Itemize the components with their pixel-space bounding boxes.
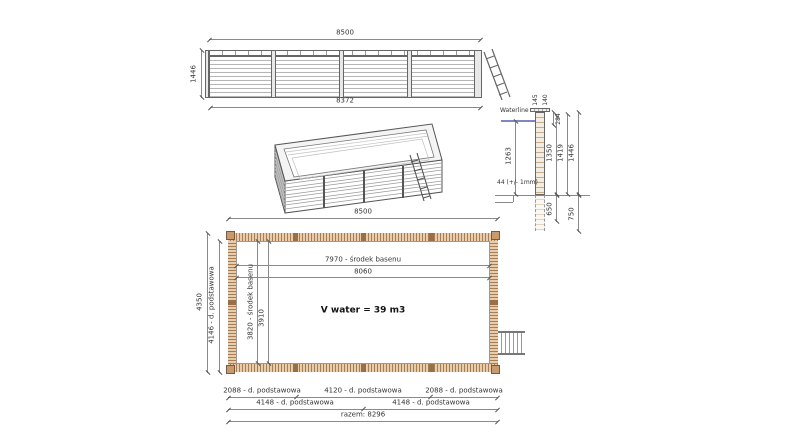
elevation-top-dim-label: 8500 [336,30,354,37]
section-ground-line [495,195,590,196]
elevation-wall-planks [209,56,481,98]
section-dim-label-1419: 1419 [558,144,565,162]
plan-corner-post [226,231,235,240]
plan-ladder-drawing [498,331,525,355]
plan-post-mark [490,300,498,305]
plan-post-mark [228,300,236,305]
plan-top-dim-line [228,218,498,219]
plan-total-label: razem: 8296 [341,412,385,419]
elevation-height-dim-label: 1446 [191,65,198,83]
plan-center-width-line [257,241,258,364]
plan-center-length-line [236,265,490,266]
elevation-post [407,50,412,98]
plan-post-mark [361,233,366,241]
section-dim-label-750: 750 [569,207,576,220]
plan-post-mark [429,233,434,241]
section-top-dim-a: 145 [533,94,539,105]
plan-row2-seg1-label: 4148 - d. podstawowa [256,400,334,407]
plan-post-mark [429,364,434,372]
elevation-post [205,50,209,98]
section-dim-line-750 [578,195,579,232]
plan-center-width-label: 3820 - środek basenu [248,264,255,340]
plan-corner-post [491,365,500,374]
section-dim-label-1350: 1350 [547,144,554,162]
technical-drawing-sheet: 8500 1446 8372 [0,0,794,446]
plan-post-mark [361,364,366,372]
elevation-bottom-dim-label: 8372 [336,98,354,105]
plan-inner-width-line [268,241,269,364]
plan-width-base-label: 4146 - d. podstawowa [209,266,216,344]
plan-post-mark [293,233,298,241]
plan-volume-label: V water = 39 m3 [321,307,405,316]
section-dim-label-1446: 1446 [569,144,576,162]
waterline-marker [501,120,535,122]
plan-inner-length-line [236,277,490,278]
section-waterline-label: Waterline [500,108,529,114]
plan-row2-seg2-label: 4148 - d. podstawowa [392,400,470,407]
section-ground-step [513,195,514,202]
plan-corner-post [491,231,500,240]
plan-inner-length-label: 8060 [354,269,372,276]
plan-view: 8500 7970 - środek basenu 8060 3820 - śr… [195,205,540,445]
section-top-dim-b: 140 [543,94,549,105]
plan-top-dim-label: 8500 [354,209,372,216]
plan-width-outer-label: 4350 [197,293,204,311]
section-dim-label-650: 650 [547,202,554,215]
section-thickness-note: 44 (+/- 1mm) [497,180,538,186]
plan-center-length-label: 7970 - środek basenu [325,257,401,264]
plan-total-dim-line [228,421,498,422]
plan-post-mark [293,364,298,372]
section-ground-line-low [495,202,513,203]
plan-row1-seg3-label: 2088 - d. podstawowa [425,388,503,395]
elevation-height-dim-line [201,50,202,98]
section-dim-line-1446 [578,112,579,195]
elevation-top-dim-line [209,39,481,40]
plan-corner-post [226,365,235,374]
elevation-post [271,50,276,98]
plan-inner-width-label: 3910 [259,309,266,327]
plan-row1-seg2-label: 4120 - d. podstawowa [324,388,402,395]
section-dim-line-650 [556,195,557,222]
elevation-post [339,50,344,98]
section-water-depth-label: 1263 [506,147,513,165]
plan-row1-seg1-label: 2088 - d. podstawowa [223,388,301,395]
plan-width-base-line [219,241,220,373]
